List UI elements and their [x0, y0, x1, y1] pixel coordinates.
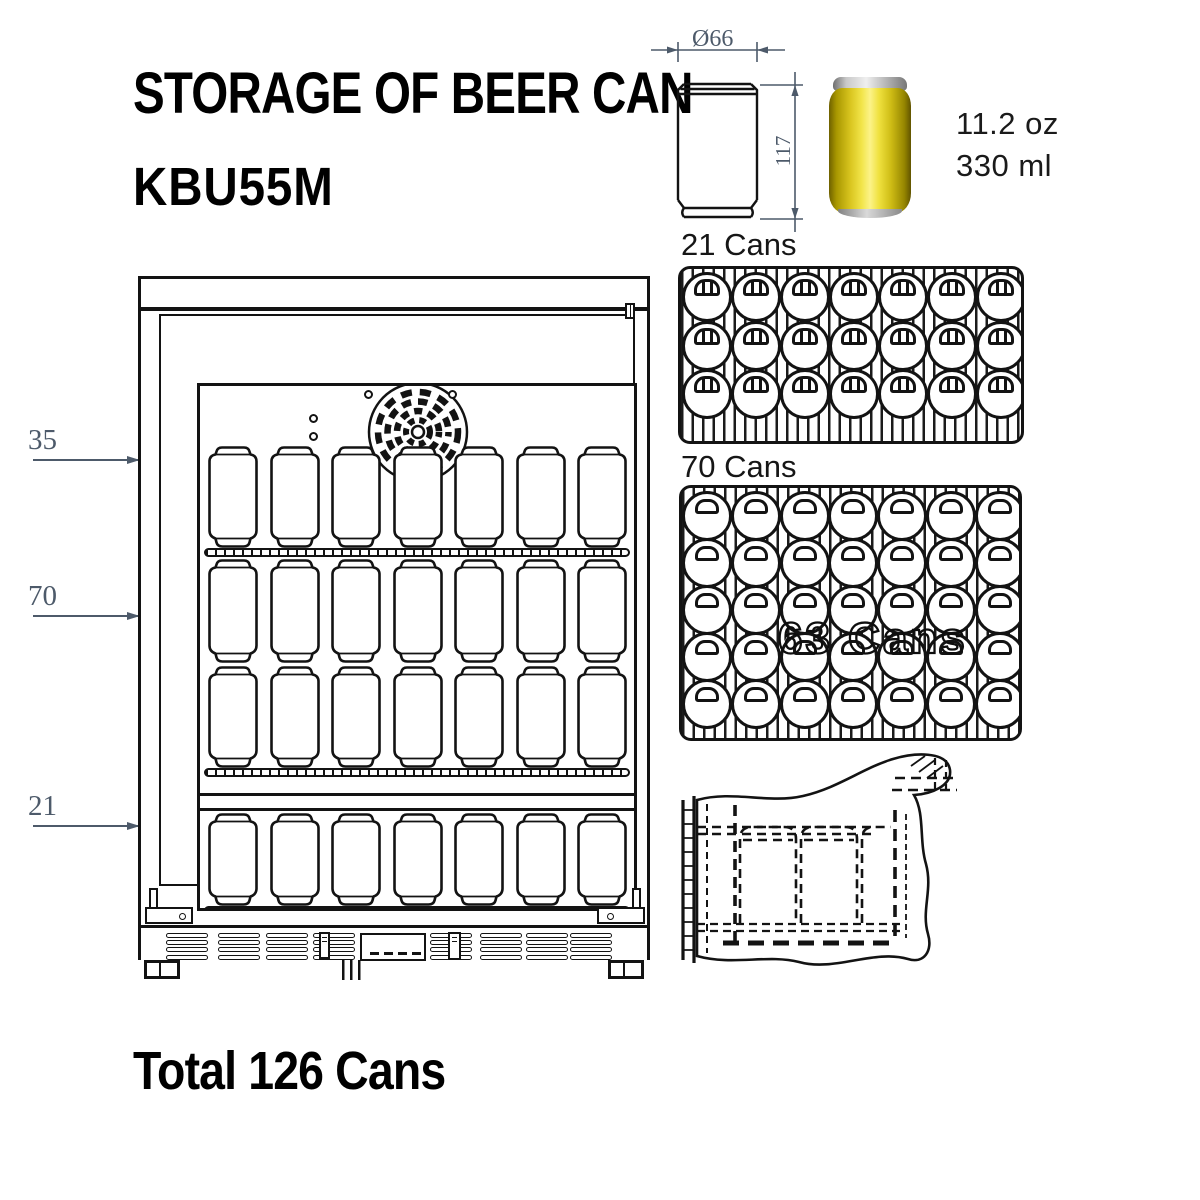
tray-can-top-icon [731, 679, 781, 729]
can-row [205, 666, 633, 768]
tray-can-top-icon [682, 679, 732, 729]
can-tab-icon [793, 546, 817, 561]
control-panel [360, 933, 426, 961]
tray-can-top-icon [829, 321, 879, 371]
fridge-top-band [141, 279, 647, 311]
can-base [838, 209, 902, 218]
tray-can-top-icon [731, 369, 781, 419]
fridge-can-icon [390, 559, 446, 663]
tray-can-top-icon [731, 538, 781, 588]
fridge-can-icon [267, 813, 323, 906]
vent-slats-icon [570, 933, 612, 962]
fridge-can-icon [328, 813, 384, 906]
can-tab-icon [988, 640, 1012, 655]
tray-can-top-icon [976, 272, 1024, 322]
tray-can-top-icon [731, 585, 781, 635]
glass-door-interior [197, 383, 637, 911]
vent-slats-icon [266, 933, 308, 962]
vent-hole-icon [309, 414, 318, 423]
vent-switch-icon [448, 932, 461, 960]
leader-arrow [33, 825, 138, 827]
tray-can-top-icon [975, 491, 1022, 541]
tray-can-top-icon [780, 321, 830, 371]
zone-count-middle-value: 70 [28, 580, 57, 612]
storage-diagram-page: STORAGE OF BEER CAN KBU55M Total 126 Can… [0, 0, 1200, 1200]
tray-can-top-icon [926, 538, 976, 588]
vent-slats-icon [526, 933, 568, 962]
vent-hole-icon [309, 432, 318, 441]
can-volume-oz: 11.2 oz [956, 106, 1059, 142]
tray-can-top-icon [975, 538, 1022, 588]
can-diameter-label: Ø66 [692, 26, 733, 53]
tray-can-top-icon [731, 632, 781, 682]
tray-can-top-icon [877, 679, 927, 729]
can-tab-icon [694, 376, 720, 393]
can-tab-icon [744, 593, 768, 608]
tray-can-top-icon [926, 491, 976, 541]
can-tab-icon [890, 279, 916, 296]
tray-21-top-view [678, 266, 1024, 444]
fridge-can-icon [451, 446, 507, 548]
tray-can-top-icon [682, 491, 732, 541]
kick-plate-vents [141, 925, 647, 963]
can-tab-icon [841, 499, 865, 514]
can-row [205, 813, 633, 906]
tray-can-top-icon [927, 369, 977, 419]
tray-can-top-icon [926, 679, 976, 729]
vent-slats-icon [480, 933, 522, 962]
can-tab-icon [792, 279, 818, 296]
fridge-can-icon [513, 559, 569, 663]
can-tab-icon [988, 376, 1014, 393]
vent-slats-icon [166, 933, 208, 962]
can-tab-icon [841, 593, 865, 608]
zone-count-bottom: 21 [28, 790, 146, 823]
fridge-can-icon [328, 666, 384, 768]
can-tab-icon [890, 546, 914, 561]
fridge-can-icon [328, 559, 384, 663]
can-tab-icon [988, 328, 1014, 345]
tray-can-top-icon [682, 585, 732, 635]
tray-can-top-icon [682, 538, 732, 588]
can-tab-icon [841, 687, 865, 702]
leader-arrow [33, 459, 138, 461]
can-tab-icon [744, 687, 768, 702]
beer-can-image [829, 77, 911, 218]
can-tab-icon [793, 687, 817, 702]
model-code: KBU55M [133, 156, 361, 218]
zone-count-middle: 70 [28, 580, 146, 613]
total-cans-label: Total 126 Cans [133, 1040, 496, 1102]
wire-shelf [204, 768, 630, 777]
tray-can-top-icon [682, 321, 732, 371]
bottom-hinge-plate-icon [145, 907, 193, 924]
tray-can-top-icon [975, 585, 1022, 635]
fridge-can-icon [390, 446, 446, 548]
can-row [205, 559, 633, 663]
can-tab-icon [793, 593, 817, 608]
can-tab-icon [841, 279, 867, 296]
can-tab-icon [939, 279, 965, 296]
can-tab-icon [939, 376, 965, 393]
leader-arrow [33, 615, 138, 617]
fridge-can-icon [451, 559, 507, 663]
tray-can-top-icon [877, 491, 927, 541]
fan-screw-icon [364, 390, 373, 399]
can-tab-icon [841, 328, 867, 345]
fridge-can-icon [513, 813, 569, 906]
fridge-can-icon [328, 446, 384, 548]
tray-can-top-icon [731, 272, 781, 322]
tray-can-top-icon [878, 321, 928, 371]
tray-can-top-icon [975, 632, 1022, 682]
tray-can-top-icon [878, 369, 928, 419]
bottom-hinge-plate-icon [597, 907, 645, 924]
fridge-can-icon [267, 559, 323, 663]
vent-switch-icon [319, 932, 330, 959]
can-tab-icon [841, 546, 865, 561]
zone-count-top: 35 [28, 424, 146, 457]
tray-can-top-icon [877, 538, 927, 588]
can-tab-icon [890, 328, 916, 345]
tray-can-top-icon [976, 321, 1024, 371]
tray-can-top-icon [682, 272, 732, 322]
can-tab-icon [792, 328, 818, 345]
can-tab-icon [939, 687, 963, 702]
can-tab-icon [939, 546, 963, 561]
can-tab-icon [695, 546, 719, 561]
tray-can-top-icon [731, 321, 781, 371]
tray-can-top-icon [976, 369, 1024, 419]
leveling-foot-icon [144, 960, 180, 979]
can-tab-icon [744, 499, 768, 514]
cabinet-cutaway-detail [663, 748, 973, 988]
fridge-can-icon [205, 666, 261, 768]
fridge-cabinet [138, 276, 650, 960]
can-tab-icon [939, 499, 963, 514]
can-tab-icon [988, 546, 1012, 561]
tray-can-top-icon [780, 491, 830, 541]
tray-can-top-icon [731, 491, 781, 541]
section-divider [197, 793, 637, 811]
fridge-can-icon [513, 666, 569, 768]
can-tab-icon [695, 640, 719, 655]
tray-21-label: 21 Cans [681, 227, 796, 263]
can-tab-icon [890, 499, 914, 514]
can-tab-icon [841, 376, 867, 393]
can-tab-icon [890, 593, 914, 608]
wire-shelf [204, 548, 630, 557]
fridge-can-icon [574, 559, 630, 663]
fridge-front-view [138, 276, 650, 982]
wire-shelf [204, 906, 630, 911]
can-tab-icon [988, 499, 1012, 514]
fridge-can-icon [205, 813, 261, 906]
tray-can-top-icon [780, 369, 830, 419]
tray-can-top-icon [828, 491, 878, 541]
tray-70-top-view: 63 Cans [679, 485, 1022, 741]
drain-prongs-icon [342, 960, 364, 980]
tray-can-top-icon [828, 538, 878, 588]
tray-can-top-icon [780, 679, 830, 729]
can-tab-icon [939, 328, 965, 345]
tray-can-top-icon [682, 632, 732, 682]
tray-can-top-icon [878, 272, 928, 322]
fridge-can-icon [205, 446, 261, 548]
door-hinge-pin-icon [625, 303, 635, 319]
leveling-foot-icon [608, 960, 644, 979]
fridge-can-icon [451, 813, 507, 906]
fridge-can-icon [390, 813, 446, 906]
can-tab-icon [744, 546, 768, 561]
can-tab-icon [694, 279, 720, 296]
fridge-can-icon [451, 666, 507, 768]
can-volume-ml: 330 ml [956, 148, 1052, 184]
tray-can-top-icon [927, 321, 977, 371]
can-tab-icon [744, 640, 768, 655]
can-tab-icon [694, 328, 720, 345]
tray-can-top-icon [829, 369, 879, 419]
tray-can-top-icon [682, 369, 732, 419]
fridge-can-icon [574, 813, 630, 906]
can-tab-icon [890, 687, 914, 702]
fridge-can-icon [574, 446, 630, 548]
zone-count-top-value: 35 [28, 424, 57, 456]
can-tab-icon [890, 376, 916, 393]
can-tab-icon [695, 593, 719, 608]
can-row [205, 446, 633, 548]
can-tab-icon [988, 687, 1012, 702]
fan-screw-icon [448, 390, 457, 399]
fridge-can-icon [205, 559, 261, 663]
fridge-can-icon [513, 446, 569, 548]
glass-door-frame [159, 314, 635, 886]
fridge-can-icon [267, 666, 323, 768]
can-dimension-drawing [645, 22, 835, 237]
can-tab-icon [743, 279, 769, 296]
can-tab-icon [988, 593, 1012, 608]
can-tab-icon [793, 499, 817, 514]
can-tab-icon [743, 328, 769, 345]
zone-count-bottom-value: 21 [28, 790, 57, 822]
fridge-can-icon [267, 446, 323, 548]
tray-can-top-icon [828, 679, 878, 729]
can-tab-icon [792, 376, 818, 393]
can-height-label: 117 [771, 121, 795, 181]
tray-can-top-icon [829, 272, 879, 322]
can-tab-icon [695, 499, 719, 514]
tray-can-top-icon [780, 538, 830, 588]
can-tab-icon [988, 279, 1014, 296]
tray-can-top-icon [780, 272, 830, 322]
tray-can-top-icon [975, 679, 1022, 729]
tray-70-label: 70 Cans [681, 449, 796, 485]
fridge-can-icon [390, 666, 446, 768]
can-tab-icon [743, 376, 769, 393]
can-tab-icon [695, 687, 719, 702]
fridge-can-icon [574, 666, 630, 768]
can-tab-icon [939, 593, 963, 608]
can-body [829, 88, 911, 213]
tray-can-top-icon [927, 272, 977, 322]
ghost-count-label: 63 Cans [778, 614, 968, 664]
vent-slats-icon [218, 933, 260, 962]
